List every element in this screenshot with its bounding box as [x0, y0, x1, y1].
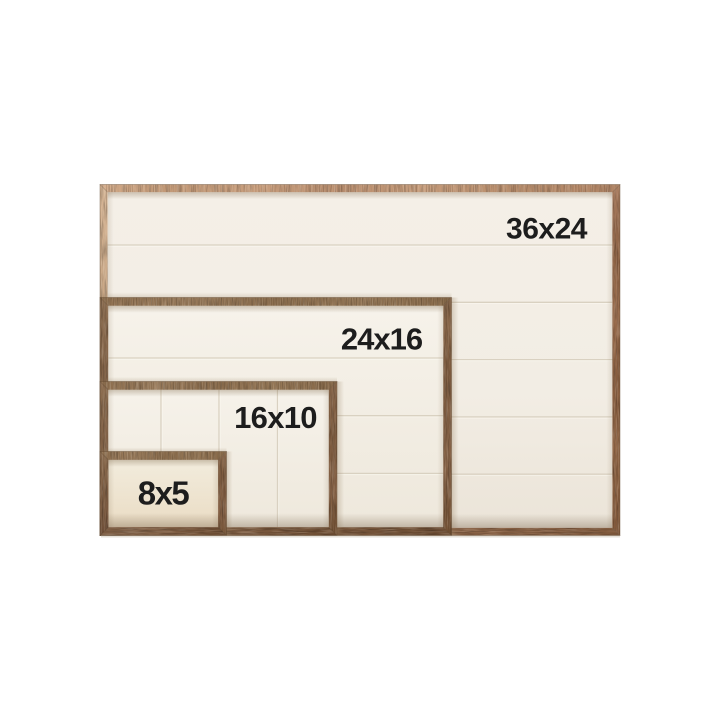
- svg-text:8x5: 8x5: [138, 475, 190, 512]
- svg-text:16x10: 16x10: [234, 400, 317, 435]
- svg-text:24x16: 24x16: [341, 322, 423, 357]
- svg-text:36x24: 36x24: [506, 213, 588, 246]
